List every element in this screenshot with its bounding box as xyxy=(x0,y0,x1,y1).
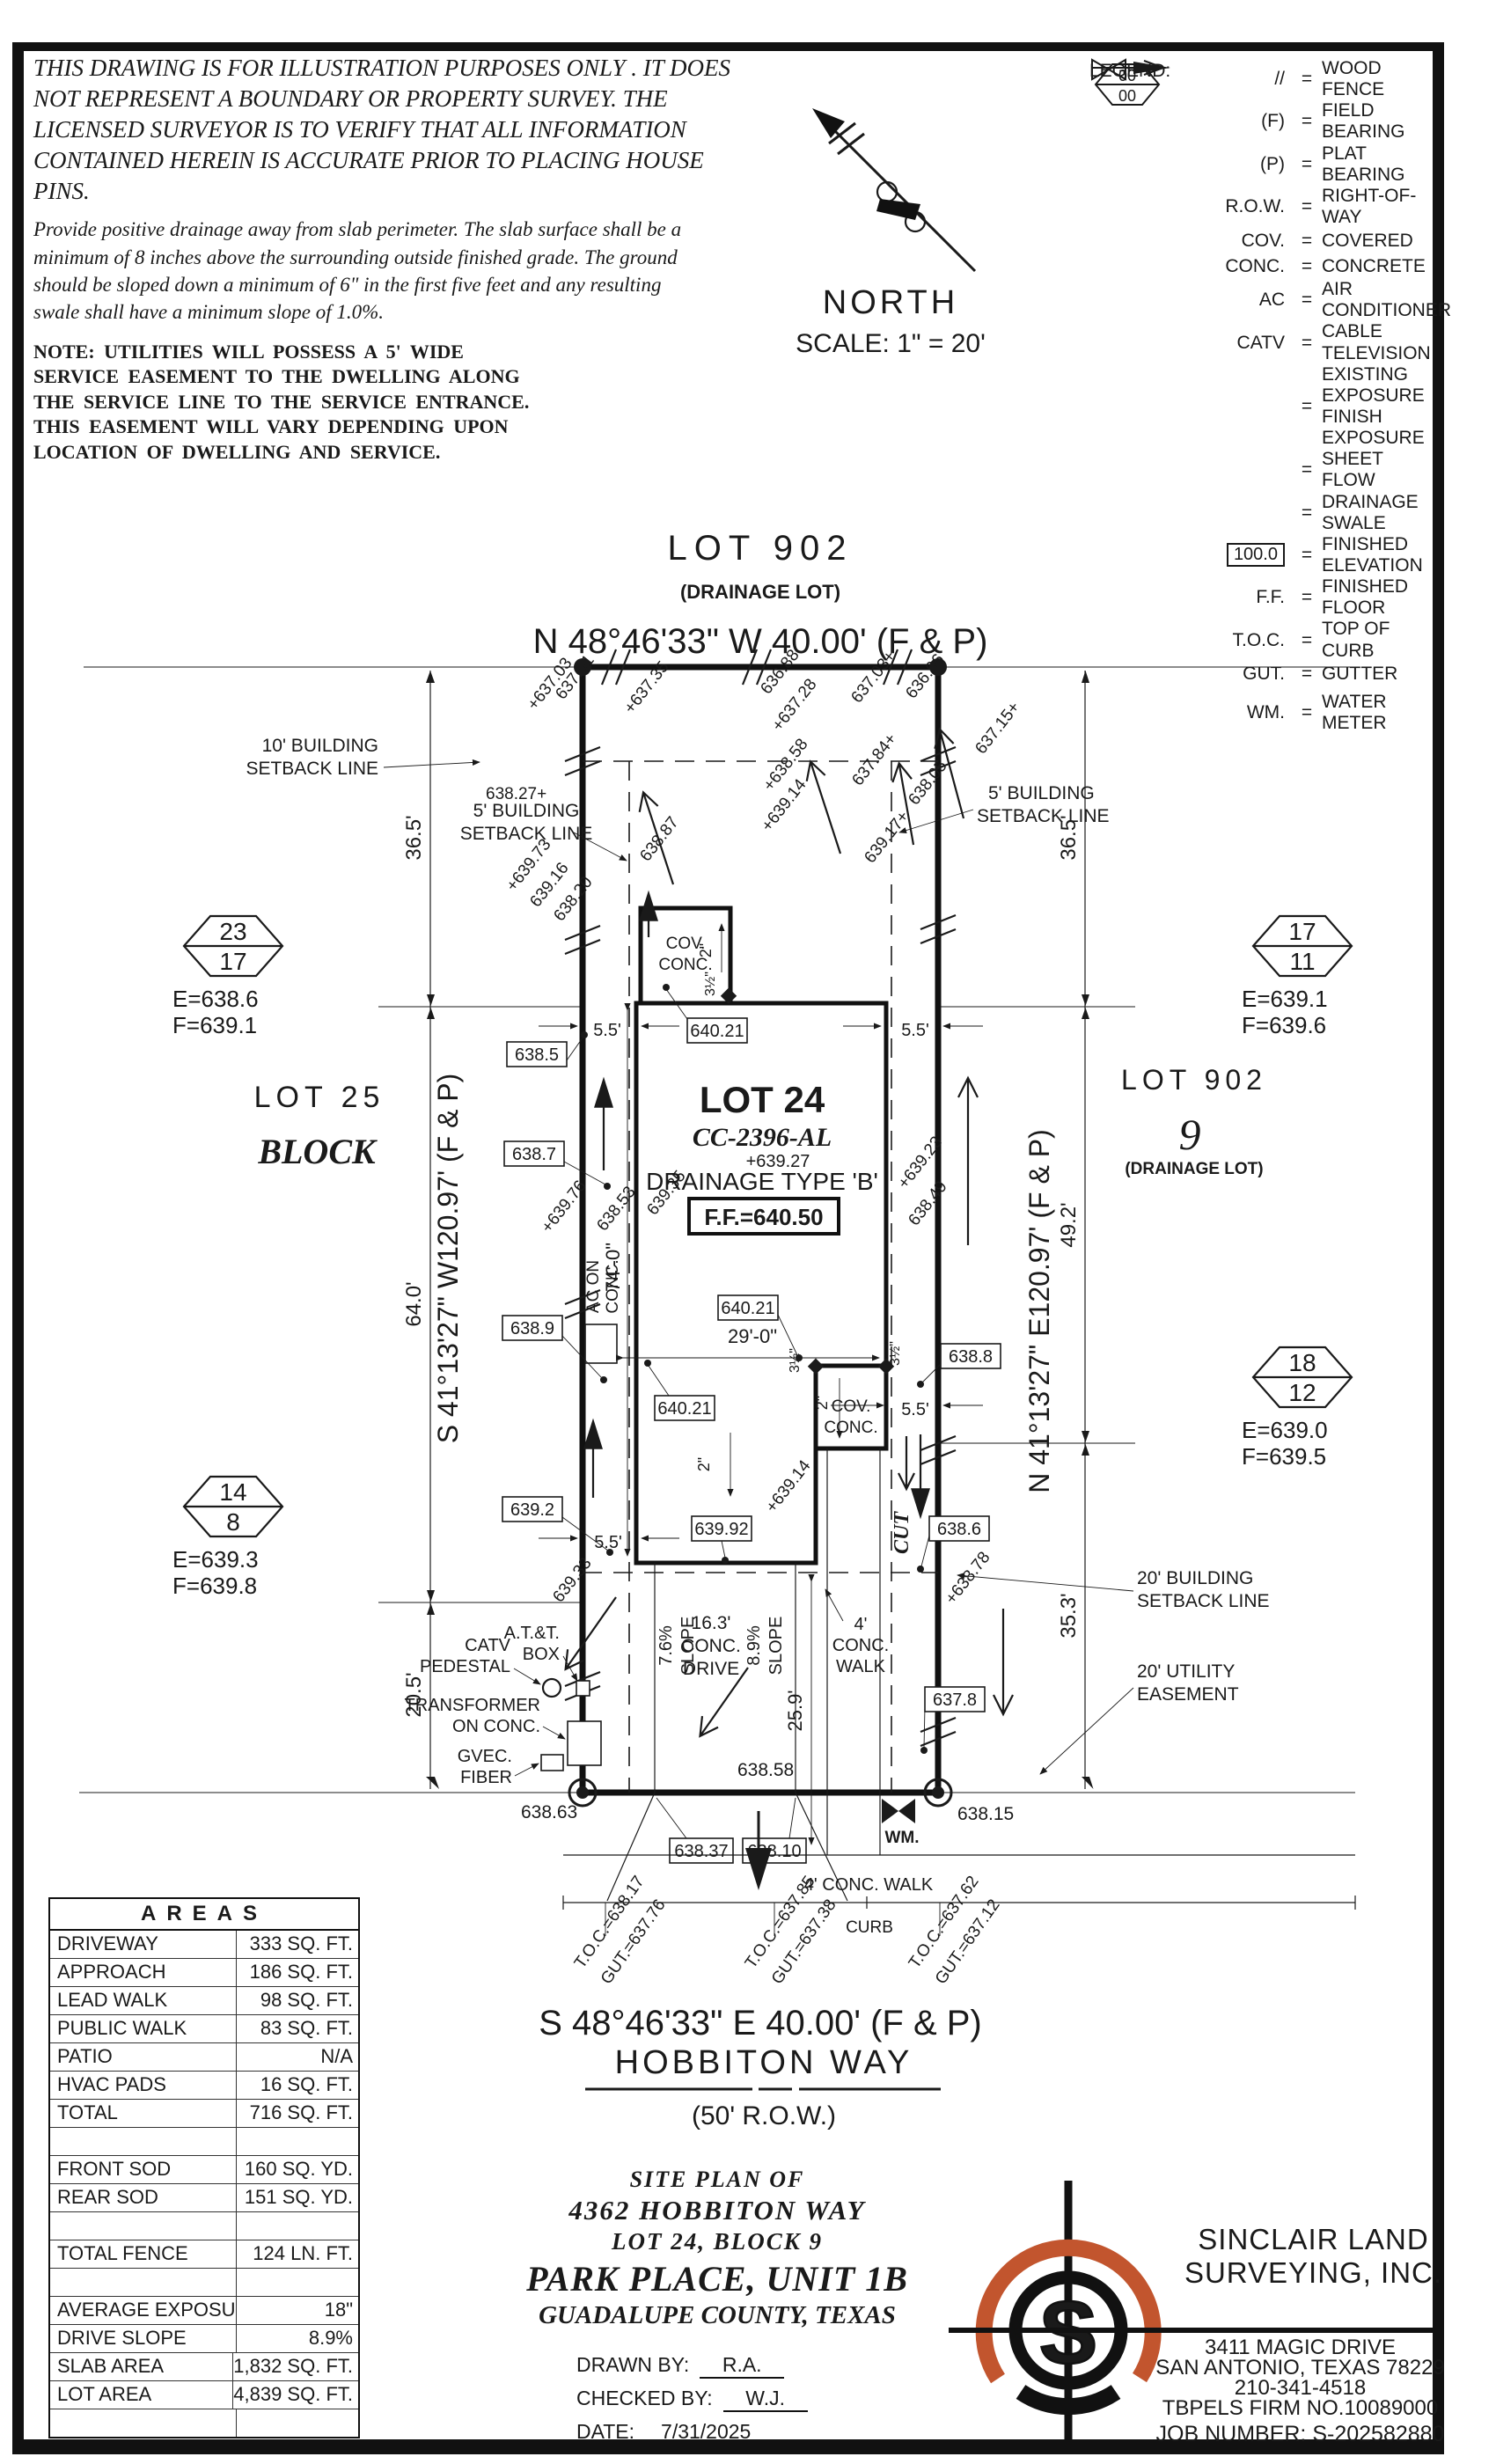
drive-slope-1: 7.6% xyxy=(656,1625,676,1666)
finished-floor-value: F.F.=640.50 xyxy=(704,1204,823,1230)
checked-by-label: CHECKED BY: xyxy=(576,2387,713,2410)
setback-10-label-1: 10' BUILDING xyxy=(262,736,378,756)
water-meter-label: WM. xyxy=(884,1829,919,1847)
finished-elevation-box: 637.8 xyxy=(920,1687,985,1754)
finished-elevation-box: 638.37 xyxy=(656,1798,733,1863)
street-labels: S 48°46'33" E 40.00' (F & P) HOBBITON WA… xyxy=(539,2004,982,2130)
row-width-label: (50' R.O.W.) xyxy=(692,2101,836,2130)
setback-10-label-2: SETBACK LINE xyxy=(246,759,378,779)
plan-top-labels: LOT 902 (DRAINAGE LOT) N 48°46'33" W 40.… xyxy=(533,529,988,661)
toc-gutter-labels: T.O.C.=638.17 GUT.=637.76 T.O.C.=637.85 … xyxy=(571,1873,1004,1988)
svg-text:F=639.6: F=639.6 xyxy=(1242,1012,1326,1038)
dim-5-5: 5.5' xyxy=(901,1021,929,1040)
table-row: TOTAL FENCE124 LN. FT. xyxy=(50,2240,358,2269)
svg-text:F=639.1: F=639.1 xyxy=(172,1012,257,1038)
table-row: FRONT SOD160 SQ. YD. xyxy=(50,2156,358,2184)
att-box xyxy=(576,1681,590,1696)
checked-by-value: W.J. xyxy=(723,2387,808,2412)
firm-address: 3411 MAGIC DRIVE SAN ANTONIO, TEXAS 7822… xyxy=(1148,2337,1452,2445)
catv-pedestal-label-1: CATV xyxy=(465,1636,511,1655)
svg-text:640.21: 640.21 xyxy=(657,1399,711,1419)
utility-note: NOTE: UTILITIES WILL POSSESS A 5' WIDE S… xyxy=(33,340,548,466)
utility-easement-label-2: EASEMENT xyxy=(1137,1684,1239,1705)
table-row: REAR SOD151 SQ. YD. xyxy=(50,2184,358,2212)
drainage-lot-right-label: (DRAINAGE LOT) xyxy=(1125,1160,1263,1178)
transformer-pad xyxy=(568,1721,601,1765)
spot-elevation: 638.15 xyxy=(957,1804,1014,1824)
svg-text:639.92: 639.92 xyxy=(694,1520,748,1539)
slope-2in: 2" xyxy=(813,1396,831,1410)
lot-902-right-label: LOT 902 xyxy=(1121,1064,1267,1096)
svg-text:00: 00 xyxy=(1118,87,1136,105)
svg-text:12: 12 xyxy=(1288,1379,1316,1406)
water-meter-symbol: WM. xyxy=(1089,702,1292,723)
gvec-fiber-label-1: GVEC. xyxy=(458,1747,512,1766)
firm-street: 3411 MAGIC DRIVE xyxy=(1148,2337,1452,2358)
table-row xyxy=(50,2269,358,2297)
step-3half: 3½" xyxy=(888,1341,903,1366)
drawn-by-label: DRAWN BY: xyxy=(576,2353,689,2377)
lot-902-top-label: LOT 902 xyxy=(668,529,854,568)
spot-elevation: 638.63 xyxy=(521,1802,577,1822)
front-porch-cov: COV. xyxy=(832,1397,871,1416)
plan-number: CC-2396-AL xyxy=(693,1123,832,1152)
dim-36-5-left: 36.5' xyxy=(402,815,426,860)
svg-text:E=638.6: E=638.6 xyxy=(172,986,259,1012)
setback-5-right-label-2: SETBACK LINE xyxy=(977,806,1110,826)
setback-5-left-label-2: SETBACK LINE xyxy=(460,824,593,844)
north-label: NORTH xyxy=(823,284,958,321)
slope-word: SLOPE xyxy=(766,1617,786,1676)
att-box-label-1: A.T.&T. xyxy=(504,1624,560,1643)
disclaimer-paragraph: THIS DRAWING IS FOR ILLUSTRATION PURPOSE… xyxy=(33,53,737,207)
table-row: DRIVEWAY333 SQ. FT. xyxy=(50,1931,358,1959)
utility-easement-label-1: 20' UTILITY xyxy=(1137,1661,1235,1682)
job-number: JOB NUMBER: S-202582880 xyxy=(1148,2424,1452,2445)
svg-text:638.37: 638.37 xyxy=(674,1842,728,1861)
table-row: DRIVE SLOPE8.9% xyxy=(50,2325,358,2353)
areas-title: AREAS xyxy=(50,1899,358,1931)
table-row: LOT AREA4,839 SQ. FT. xyxy=(50,2381,358,2409)
svg-text:8: 8 xyxy=(226,1508,240,1536)
table-row: APPROACH186 SQ. FT. xyxy=(50,1959,358,1987)
spot-elevation: 639.17+ xyxy=(861,808,913,867)
svg-text:14: 14 xyxy=(219,1478,246,1506)
finished-elevation-box: 638.8 xyxy=(917,1344,1001,1388)
gvec-fiber-box xyxy=(541,1755,563,1771)
finished-elevation-box: 638.5 xyxy=(507,1031,588,1067)
table-row: TOTAL716 SQ. FT. xyxy=(50,2100,358,2128)
bearing-east: N 41°13'27" E120.97' (F & P) xyxy=(1023,1129,1055,1492)
step-3half: 3½" xyxy=(703,972,718,996)
att-box-label-2: BOX xyxy=(523,1645,560,1664)
table-row xyxy=(50,2212,358,2240)
svg-text:640.21: 640.21 xyxy=(690,1022,744,1041)
slope-2in: 2" xyxy=(697,943,715,957)
drainage-note: Provide positive drainage away from slab… xyxy=(33,216,711,325)
finished-elevation-box: 638.10 xyxy=(743,1798,806,1863)
table-row xyxy=(50,2409,358,2437)
svg-text:638.10: 638.10 xyxy=(747,1842,801,1861)
slope-2in: 2" xyxy=(695,1457,713,1471)
svg-text:638.7: 638.7 xyxy=(512,1145,556,1164)
table-row: AVERAGE EXPOSURE18" xyxy=(50,2297,358,2325)
slope-word: SLOPE xyxy=(678,1617,698,1676)
svg-text:638.6: 638.6 xyxy=(937,1520,981,1539)
table-row xyxy=(50,2128,358,2156)
site-address: 4362 HOBBITON WAY xyxy=(497,2195,937,2226)
scale-label: SCALE: 1" = 20' xyxy=(796,329,986,358)
spot-elevation: 638.05 xyxy=(905,757,950,809)
catv-pedestal-label-2: PEDESTAL xyxy=(420,1657,510,1676)
svg-text:640.21: 640.21 xyxy=(721,1299,774,1318)
finished-elevation-box: 638.7 xyxy=(504,1141,611,1190)
date-label: DATE: xyxy=(576,2420,634,2444)
street-name: HOBBITON WAY xyxy=(615,2044,913,2081)
public-walk-label: 4' CONC. WALK xyxy=(804,1875,934,1895)
svg-text:637.8: 637.8 xyxy=(933,1690,977,1710)
firm-name: SINCLAIR LAND SURVEYING, INC. xyxy=(1170,2223,1456,2289)
svg-text:F=639.5: F=639.5 xyxy=(1242,1443,1326,1470)
exposure-marker: 14 8 E=639.3 F=639.8 xyxy=(172,1477,282,1599)
lot-24-label: LOT 24 xyxy=(700,1079,825,1120)
exposure-marker: 18 12 E=639.0 F=639.5 xyxy=(1242,1347,1352,1470)
svg-text:17: 17 xyxy=(1288,918,1316,945)
subdivision-line: PARK PLACE, UNIT 1B xyxy=(497,2258,937,2299)
walk-dim: 4' xyxy=(854,1615,868,1634)
bearing-south: S 48°46'33" E 40.00' (F & P) xyxy=(539,2004,982,2042)
setback-5-left-label-1: 5' BUILDING xyxy=(473,801,580,821)
spot-elevation: 638.58 xyxy=(737,1760,794,1780)
firm-tbpels: TBPELS FIRM NO.10089000 xyxy=(1148,2398,1452,2418)
dim-74-0: 74'-0" xyxy=(602,1243,624,1292)
bearing-west: S 41°13'27" W120.97' (F & P) xyxy=(432,1074,464,1444)
drive-slope-2: 8.9% xyxy=(744,1625,764,1666)
table-row: PATION/A xyxy=(50,2043,358,2072)
block-9-label: 9 xyxy=(1179,1110,1201,1159)
date-value: 7/31/2025 xyxy=(645,2420,766,2446)
svg-text:638.9: 638.9 xyxy=(510,1319,554,1338)
svg-text:23: 23 xyxy=(219,918,246,945)
spot-elevation: 637.15+ xyxy=(972,699,1023,758)
spot-elevation: 639.33 xyxy=(549,1554,595,1606)
setback-20-label-2: SETBACK LINE xyxy=(1137,1591,1270,1611)
svg-text:E=639.1: E=639.1 xyxy=(1242,986,1328,1012)
spot-elevation: 638.53 xyxy=(593,1183,639,1235)
transformer-label-1: TRANSFORMER xyxy=(405,1696,540,1715)
table-row: LEAD WALK98 SQ. FT. xyxy=(50,1987,358,2015)
north-arrow: NORTH SCALE: 1" = 20' xyxy=(796,108,986,358)
lot-25-label: LOT 25 xyxy=(254,1081,385,1114)
svg-text:18: 18 xyxy=(1288,1349,1316,1376)
exposure-marker: 17 11 E=639.1 F=639.6 xyxy=(1242,916,1352,1038)
front-porch-conc: CONC. xyxy=(824,1419,877,1437)
survey-sheet: NORTH SCALE: 1" = 20' LOT 902 (DRAINAGE … xyxy=(0,0,1496,2464)
finished-elevation-symbol: 100.0 xyxy=(1227,543,1285,567)
table-row: HVAC PADS16 SQ. FT. xyxy=(50,2072,358,2100)
dim-49-2: 49.2' xyxy=(1057,1202,1081,1247)
svg-text:639.2: 639.2 xyxy=(510,1500,554,1520)
curb-label: CURB xyxy=(846,1918,893,1937)
block-label: BLOCK xyxy=(257,1132,378,1171)
table-row: SLAB AREA1,832 SQ. FT. xyxy=(50,2353,358,2381)
dim-5-5: 5.5' xyxy=(901,1400,929,1419)
firm-city: SAN ANTONIO, TEXAS 78229 xyxy=(1148,2358,1452,2378)
catv-pedestal xyxy=(543,1679,561,1697)
lot-902-top-sub: (DRAINAGE LOT) xyxy=(680,581,840,603)
county-line: GUADALUPE COUNTY, TEXAS xyxy=(497,2301,937,2330)
dim-64-0: 64.0' xyxy=(402,1281,426,1326)
legend: LEGEND: //=WOOD FENCE (F)=FIELD BEARING … xyxy=(1089,58,1441,738)
svg-text:638.8: 638.8 xyxy=(949,1347,993,1367)
drawn-by-value: R.A. xyxy=(700,2353,784,2379)
table-row: PUBLIC WALK83 SQ. FT. xyxy=(50,2015,358,2043)
areas-table: AREAS DRIVEWAY333 SQ. FT. APPROACH186 SQ… xyxy=(48,1897,360,2438)
svg-text:E=639.3: E=639.3 xyxy=(172,1546,259,1573)
cut-label: CUT xyxy=(891,1511,913,1554)
disclaimer-block: THIS DRAWING IS FOR ILLUSTRATION PURPOSE… xyxy=(33,53,737,466)
transformer-label-2: ON CONC. xyxy=(452,1717,540,1736)
dim-35-3: 35.3' xyxy=(1057,1593,1081,1638)
house-footprint: COV. CONC. COV. CONC. 3½" 3½" 3½" LOT 24… xyxy=(636,908,903,1563)
svg-text:17: 17 xyxy=(219,948,246,975)
svg-text:E=639.0: E=639.0 xyxy=(1242,1417,1328,1443)
firm-phone: 210-341-4518 xyxy=(1148,2378,1452,2398)
title-line: SITE PLAN OF xyxy=(497,2167,937,2193)
exposure-marker: 23 17 E=638.6 F=639.1 xyxy=(172,916,282,1038)
spot-elevation: 638.87 xyxy=(636,813,682,865)
setback-5-right-label-1: 5' BUILDING xyxy=(988,783,1095,803)
bearing-north: N 48°46'33" W 40.00' (F & P) xyxy=(533,622,988,661)
svg-text:11: 11 xyxy=(1289,948,1315,975)
lot-block-line: LOT 24, BLOCK 9 xyxy=(497,2228,937,2255)
dim-29-0: 29'-0" xyxy=(728,1325,777,1347)
walk-label-2: WALK xyxy=(836,1657,886,1676)
title-block: SITE PLAN OF 4362 HOBBITON WAY LOT 24, B… xyxy=(497,2167,937,2446)
water-meter: WM. xyxy=(882,1799,920,1847)
walk-label-1: CONC. xyxy=(832,1636,889,1655)
svg-text:638.5: 638.5 xyxy=(515,1045,559,1065)
ac-label-1: AC ON xyxy=(584,1260,603,1313)
gvec-fiber-label-2: FIBER xyxy=(460,1768,512,1787)
svg-text:F=639.8: F=639.8 xyxy=(172,1573,257,1599)
setback-20-label-1: 20' BUILDING xyxy=(1137,1568,1253,1588)
dim-5-5: 5.5' xyxy=(593,1021,621,1040)
